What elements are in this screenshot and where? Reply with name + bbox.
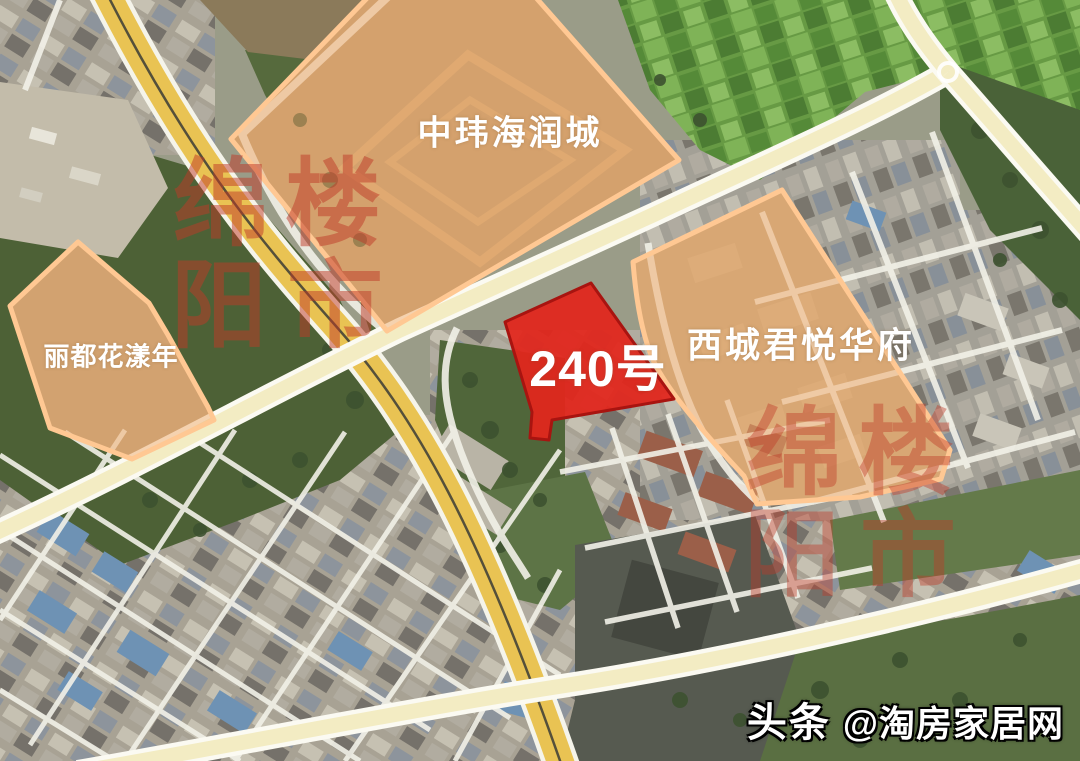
parcel-label-lidu: 丽都花漾年 xyxy=(43,337,178,374)
parcel-label-lot240: 240号 xyxy=(529,329,666,401)
satellite-map-screenshot: 中玮海润城 丽都花漾年 西城君悦华府 240号 绵 楼 阳 市 绵 楼 阳 市 … xyxy=(0,0,1080,761)
parcel-label-zhongwei: 中玮海润城 xyxy=(418,106,603,155)
source-credit: 头条@淘房家居网 xyxy=(747,690,1064,748)
credit-source: 头条 xyxy=(747,701,831,745)
parcel-label-xicheng: 西城君悦华府 xyxy=(687,318,915,369)
credit-handle: @淘房家居网 xyxy=(843,703,1064,744)
